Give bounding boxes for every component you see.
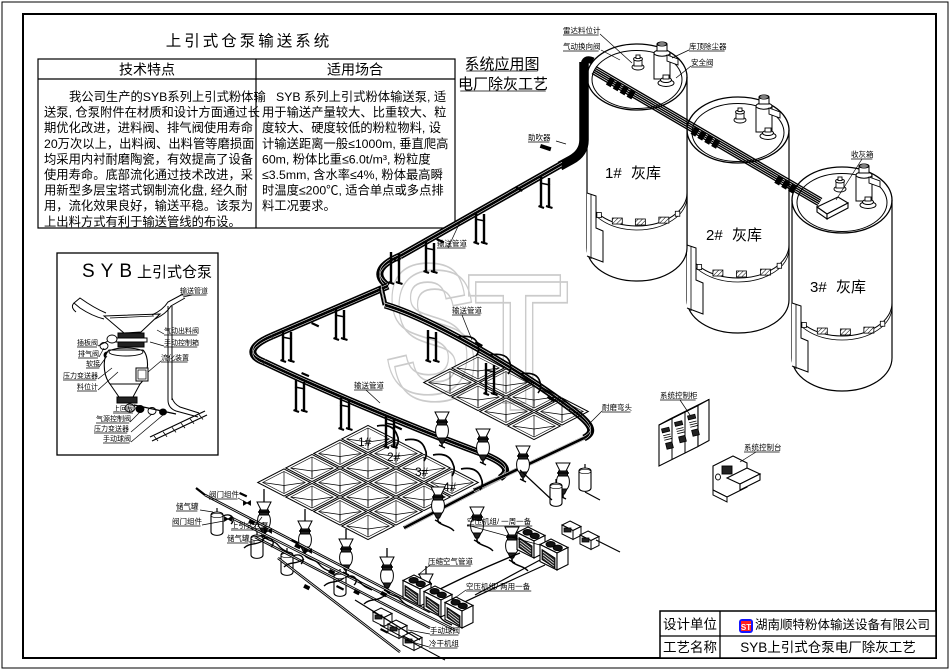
svg-text:耐磨弯头: 耐磨弯头: [602, 402, 632, 412]
svg-text:上回阀: 上回阀: [113, 404, 134, 413]
svg-text:用于输送产量较大、比重较大、粒: 用于输送产量较大、比重较大、粒: [262, 105, 446, 120]
svg-text:雷达料位计: 雷达料位计: [563, 25, 601, 35]
svg-text:阀门组件: 阀门组件: [172, 516, 202, 526]
svg-text:气源控制阀: 气源控制阀: [96, 414, 131, 423]
svg-text:手动控制箱: 手动控制箱: [164, 338, 199, 347]
svg-text:上引式仓泵: 上引式仓泵: [137, 264, 212, 281]
svg-text:排气阀: 排气阀: [78, 349, 99, 358]
svg-text:3#: 3#: [415, 465, 429, 479]
svg-text:收灰箱: 收灰箱: [851, 149, 874, 159]
svg-text:助吹器: 助吹器: [528, 132, 551, 142]
svg-text:用，流化效果良好，输送平稳。该泵为: 用，流化效果良好，输送平稳。该泵为: [44, 198, 253, 213]
svg-text:上引式仓泵: 上引式仓泵: [231, 520, 269, 530]
svg-text:期优化改进，进料阀、排气阀使用寿命: 期优化改进，进料阀、排气阀使用寿命: [44, 120, 253, 135]
svg-text:空压机组/ 两用一备: 空压机组/ 两用一备: [466, 581, 531, 591]
svg-text:SYB上引式仓泵电厂除灰工艺: SYB上引式仓泵电厂除灰工艺: [740, 640, 916, 655]
svg-text:气动换向阀: 气动换向阀: [563, 41, 601, 51]
svg-text:空压机组/ 一周一备: 空压机组/ 一周一备: [467, 516, 532, 526]
svg-text:计输送距离一般≤1000m, 垂直爬高: 计输送距离一般≤1000m, 垂直爬高: [262, 136, 448, 151]
svg-text:压力变送器: 压力变送器: [94, 424, 129, 433]
svg-text:系统应用图: 系统应用图: [464, 55, 539, 73]
svg-text:上出料方式有利于输送管线的布设。: 上出料方式有利于输送管线的布设。: [44, 214, 241, 229]
svg-text:安全阀: 安全阀: [691, 57, 714, 67]
svg-text:压缩空气管道: 压缩空气管道: [428, 556, 473, 566]
svg-text:输送管道: 输送管道: [354, 380, 384, 390]
svg-text:输送管道: 输送管道: [180, 286, 208, 295]
svg-text:1#: 1#: [358, 435, 372, 449]
svg-text:工艺名称: 工艺名称: [663, 640, 717, 655]
svg-text:料位计: 料位计: [77, 382, 98, 391]
svg-text:插板阀: 插板阀: [77, 338, 98, 347]
svg-text:电厂除灰工艺: 电厂除灰工艺: [458, 76, 548, 93]
svg-text:均采用内衬耐磨陶瓷，有效提高了设备: 均采用内衬耐磨陶瓷，有效提高了设备: [44, 151, 253, 166]
svg-text:储气罐: 储气罐: [176, 501, 199, 511]
svg-text:压力变送器: 压力变送器: [63, 371, 98, 380]
svg-text:60m, 粉体比重≤6.0t/m³, 粉粒度: 60m, 粉体比重≤6.0t/m³, 粉粒度: [262, 151, 431, 166]
svg-text:2#: 2#: [387, 450, 401, 464]
svg-text:ST: ST: [741, 623, 751, 632]
svg-text:料工况要求。: 料工况要求。: [262, 199, 336, 213]
svg-text:储气罐: 储气罐: [227, 533, 250, 543]
svg-text:度较大、硬度较低的粉粒物料, 设: 度较大、硬度较低的粉粒物料, 设: [262, 120, 441, 135]
svg-text:手动球阀: 手动球阀: [103, 434, 131, 443]
svg-text:灰库: 灰库: [631, 165, 661, 182]
svg-text:用新型多层宝塔式钢制流化盘, 经久耐: 用新型多层宝塔式钢制流化盘, 经久耐: [44, 183, 248, 198]
svg-text:系统控制柜: 系统控制柜: [660, 390, 698, 400]
svg-text:湖南顺特粉体输送设备有限公司: 湖南顺特粉体输送设备有限公司: [755, 617, 930, 632]
svg-text:灰库: 灰库: [732, 227, 762, 244]
svg-text:3#: 3#: [810, 279, 827, 296]
svg-text:SYB 系列上引式粉体输送泵, 适: SYB 系列上引式粉体输送泵, 适: [276, 89, 446, 104]
svg-text:手动球阀: 手动球阀: [430, 625, 460, 635]
svg-text:灰库: 灰库: [836, 279, 866, 296]
svg-text:使用寿命。底部流化通过技术改进，采: 使用寿命。底部流化通过技术改进，采: [44, 167, 253, 182]
svg-text:系统控制台: 系统控制台: [744, 442, 782, 452]
svg-text:冷干机组: 冷干机组: [429, 638, 459, 648]
svg-text:输送管道: 输送管道: [452, 305, 482, 315]
svg-text:我公司生产的SYB系列上引式粉体输: 我公司生产的SYB系列上引式粉体输: [69, 89, 266, 104]
svg-text:适用场合: 适用场合: [327, 62, 383, 78]
svg-text:阀门组件: 阀门组件: [209, 489, 239, 499]
svg-text:送泵, 仓泵附件在材质和设计方面通过长: 送泵, 仓泵附件在材质和设计方面通过长: [44, 105, 260, 120]
svg-text:流化装置: 流化装置: [161, 353, 189, 362]
svg-text:技术特点: 技术特点: [119, 62, 175, 78]
svg-text:2#: 2#: [706, 227, 723, 244]
svg-text:软接: 软接: [86, 359, 100, 368]
svg-text:时温度≤200℃, 适合单点或多点排: 时温度≤200℃, 适合单点或多点排: [262, 183, 444, 198]
svg-text:20万次以上，出料阀、出料管等磨损面: 20万次以上，出料阀、出料管等磨损面: [44, 136, 254, 151]
svg-text:库顶除尘器: 库顶除尘器: [689, 41, 727, 51]
svg-text:1#: 1#: [605, 165, 622, 182]
svg-text:上引式仓泵输送系统: 上引式仓泵输送系统: [166, 32, 333, 50]
svg-text:SYB: SYB: [82, 261, 138, 282]
svg-text:设计单位: 设计单位: [663, 617, 717, 632]
svg-text:气动出料阀: 气动出料阀: [164, 326, 199, 335]
svg-text:≤3.5mm, 含水率≤4%, 粉体最高瞬: ≤3.5mm, 含水率≤4%, 粉体最高瞬: [262, 167, 443, 182]
